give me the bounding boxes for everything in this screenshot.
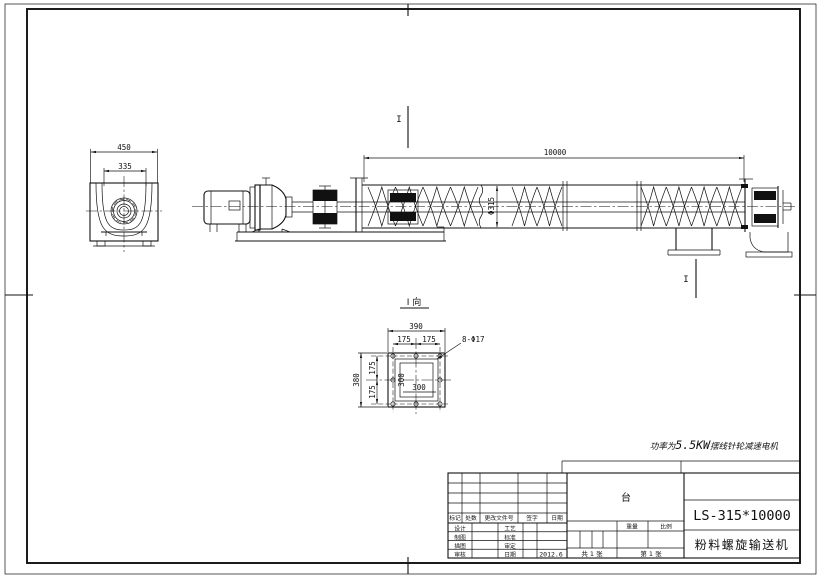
weight-label: 重量 [626,523,638,531]
discharge-spout [668,228,720,255]
trough-end-plate-left [350,178,368,232]
sign-label-design: 设计 [454,525,466,533]
section-marker-top: I [396,106,408,148]
holes-note: 8-Φ17 [462,335,485,344]
dim-450-label: 450 [117,143,131,152]
rev-header-date: 日期 [551,515,563,522]
holes-leader: 8-Φ17 [437,335,485,359]
signature-table: 设计 工艺 制图 标准 描图 审定 审核 日期 2012.6 [448,523,567,559]
dim-10000-label: 10000 [544,148,567,157]
end-view: 450 335 [86,143,162,252]
dim-phi315-label: Φ315 [487,197,496,215]
sign-label-draft: 制图 [454,534,466,542]
rev-header-sign: 签字 [526,514,538,522]
sign-label-check: 审核 [454,551,466,559]
rev-header-mark: 标记 [449,514,461,522]
dim-175-left-top: 175 [368,361,377,375]
title-date: 2012.6 [539,551,563,559]
title-block: 标记 处数 更改文件号 签字 日期 设计 工艺 制图 标准 描图 审定 审核 日… [448,461,800,559]
detail-view-I: I 向 390 175 175 [352,296,485,414]
dim-300-horizontal: 300 [412,383,426,392]
main-view: 10000 Φ315 I I [192,106,796,298]
dim-380-label: 380 [352,373,361,387]
title-right: LS-315*10000 粉料螺旋输送机 [684,500,800,552]
dim-300-vertical: 300 [397,373,406,387]
dim-175-left-bottom: 175 [368,385,377,399]
tube-flange-joint [563,181,641,231]
power-note-value: 5.5KW [675,438,711,452]
dim-335-label: 335 [118,162,132,171]
cad-drawing-sheet: 450 335 [0,0,821,579]
dim-phi315: Φ315 [487,186,497,227]
gear-reducer [250,178,292,232]
rev-header-count: 处数 [465,514,477,522]
title-middle: 台 重量 比例 共 1 张 第 1 张 [567,491,684,558]
sign-label-trace: 描图 [454,542,466,550]
dim-175-top-left: 175 [397,335,411,344]
tail-bearing [739,179,792,257]
power-note: 功率为5.5KW摆线针轮减速电机 [650,438,779,452]
rev-header-docno: 更改文件号 [485,514,514,522]
dim-335: 335 [104,162,146,186]
conveyor-tube [362,181,745,231]
section-marker-bottom-label: I [683,275,688,285]
power-note-prefix: 功率为 [650,441,676,452]
dim-300-inner: 300 300 [397,373,436,392]
drawing-canvas: 450 335 [0,0,821,579]
dim-175-top: 175 175 [393,335,440,344]
revision-table: 标记 处数 更改文件号 签字 日期 [448,473,567,523]
drawing-product-name: 粉料螺旋输送机 [695,537,790,552]
shaft-coupling [292,186,337,228]
sign-label-standard: 标准 [504,534,516,542]
section-marker-bottom: I [683,259,696,298]
scale-label: 比例 [660,523,672,531]
power-note-suffix: 摆线针轮减速电机 [710,441,779,452]
unit-label: 台 [621,491,631,504]
section-marker-top-label: I [396,115,401,125]
drawing-model-number: LS-315*10000 [693,508,791,524]
sign-label-process: 工艺 [504,525,516,533]
sheet-border [5,4,816,574]
dim-10000: 10000 [364,148,744,182]
sheet-total: 共 1 张 [581,549,603,558]
sheet-number: 第 1 张 [640,549,662,558]
dim-175-top-right: 175 [422,335,436,344]
sign-label-approve: 审定 [504,542,516,550]
motor [204,191,250,232]
detail-view-title: I 向 [407,296,422,308]
dim-390-label: 390 [409,322,423,331]
sign-label-date: 日期 [504,552,516,559]
